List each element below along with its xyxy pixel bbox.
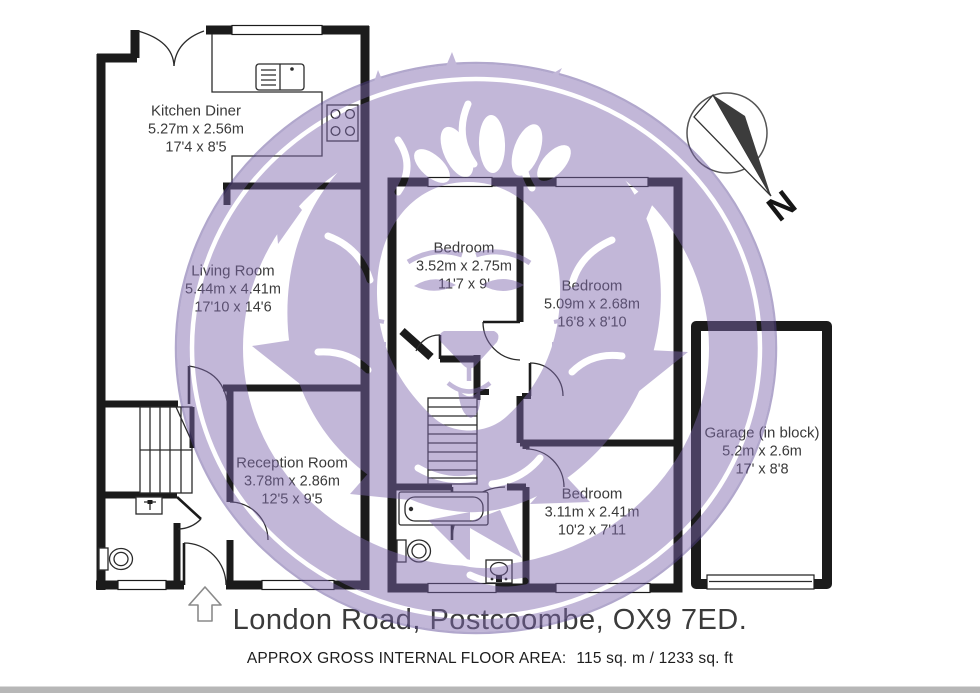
garage-door <box>707 575 814 589</box>
bathtub-icon <box>399 492 488 525</box>
garage-building <box>691 321 832 589</box>
floorplan-page: N Kitchen Diner 5.27m x 2.56m 17'4 x 8'5… <box>0 0 980 693</box>
wc-basin-icon <box>136 497 162 514</box>
bedroom1-window <box>428 178 492 187</box>
bathroom-window <box>428 584 496 593</box>
reception-window <box>262 581 334 590</box>
wc-window <box>118 581 166 590</box>
bathroom-basin-icon <box>486 560 512 583</box>
bathroom-toilet-icon <box>397 540 431 562</box>
bedroom3-window <box>556 584 650 593</box>
floorplan-drawing: N <box>0 0 980 693</box>
ground-floor-building <box>96 26 369 622</box>
garage-area <box>691 321 832 589</box>
entrance-arrow-icon <box>189 587 221 621</box>
stairs-ground-floor <box>140 407 192 493</box>
first-floor-building <box>388 178 683 593</box>
stairs-first-floor <box>428 398 477 484</box>
bedroom2-window <box>556 178 648 187</box>
kitchen-window <box>232 26 322 35</box>
compass-rose: N <box>687 93 804 229</box>
bottom-scan-band <box>0 687 980 693</box>
first-floor-area <box>388 178 683 593</box>
kitchen-sink-icon <box>256 64 304 90</box>
hob-icon <box>327 105 358 141</box>
wc-toilet-icon <box>99 548 133 570</box>
